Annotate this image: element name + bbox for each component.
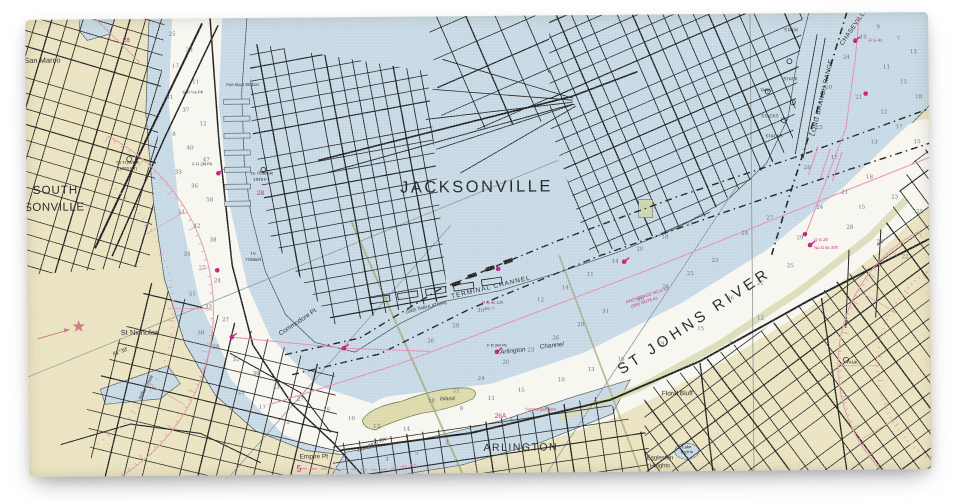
depth-sounding: 15 <box>914 139 922 145</box>
depth-sounding: 3 <box>445 440 449 446</box>
depth-sounding: 29 <box>796 235 804 241</box>
map-label: Q G 2ft <box>814 237 828 242</box>
depth-sounding: 42 <box>193 223 200 229</box>
depth-sounding: 24 <box>843 55 851 61</box>
depth-sounding: 26 <box>804 165 812 171</box>
depth-sounding: 25 <box>169 32 177 38</box>
depth-sounding: 24 <box>214 278 222 284</box>
depth-sounding: 37 <box>182 108 190 114</box>
map-label: STACK <box>783 76 797 81</box>
depth-sounding: 13 <box>373 424 381 430</box>
map-label: STACKS <box>761 113 778 118</box>
pier <box>224 184 250 189</box>
map-label: STACKS <box>765 133 782 138</box>
depth-sounding: 21 <box>686 221 693 227</box>
depth-sounding: 10 <box>558 377 566 383</box>
depth-sounding: 8 <box>172 132 176 138</box>
depth-sounding: 40 <box>187 145 195 151</box>
depth-sounding: 12 <box>757 316 764 322</box>
depth-sounding: 27 <box>297 397 305 403</box>
depth-sounding: 3 <box>385 457 389 463</box>
depth-sounding: 28 <box>846 225 854 231</box>
map-label: 26A <box>495 413 507 420</box>
depth-sounding: 27 <box>222 317 230 323</box>
depth-sounding: 12 <box>199 121 206 127</box>
map-label: F R 2M Pk <box>487 343 508 348</box>
depth-sounding: 33 <box>175 170 183 176</box>
depth-sounding: 13 <box>588 367 596 373</box>
depth-sounding: 24 <box>478 376 486 382</box>
buoy-icon <box>496 267 501 272</box>
road <box>700 363 713 473</box>
map-label: TANK <box>760 87 771 92</box>
buoy-icon <box>215 268 220 273</box>
map-label: G R ¼s Pk <box>183 89 204 94</box>
depth-sounding: 9 <box>876 24 880 30</box>
pier <box>224 99 250 104</box>
map-label: Eggleston <box>647 455 674 461</box>
depth-sounding: 18 <box>866 175 874 181</box>
map-label: F R 2M Pk <box>192 161 213 166</box>
map-label: 1049 FT <box>253 177 270 182</box>
depth-sounding: 23 <box>891 194 899 200</box>
depth-sounding: 18 <box>428 398 436 404</box>
pier <box>224 150 250 155</box>
depth-sounding: 7 <box>475 430 479 436</box>
map-label: San Marco <box>25 56 61 65</box>
depth-sounding: 11 <box>883 64 890 70</box>
depth-sounding: 15 <box>518 388 526 394</box>
depth-sounding: 38 <box>209 237 217 243</box>
map-label: TANK <box>846 360 857 365</box>
depth-sounding: 12 <box>537 297 544 303</box>
depth-sounding: 23 <box>238 390 246 396</box>
depth-sounding: 28 <box>452 323 460 329</box>
depth-sounding: 31 <box>602 309 609 315</box>
depth-sounding: 26 <box>427 338 435 344</box>
depth-sounding: 14 <box>562 285 570 291</box>
depth-sounding: 25 <box>787 263 795 269</box>
depth-sounding: 27 <box>199 265 207 271</box>
map-label: Lucina <box>681 449 694 454</box>
map-label: TV <box>250 251 256 256</box>
map-label: 5 <box>296 464 301 474</box>
depth-sounding: 15 <box>858 205 866 211</box>
depth-sounding: 11 <box>587 272 594 278</box>
depth-sounding: 34 <box>184 252 192 258</box>
depth-sounding: 51 <box>189 291 196 297</box>
map-label: No G 6s 30ft <box>814 245 838 250</box>
nautical-chart: JACKSONVILLE 252317113137128404733365851… <box>25 12 932 477</box>
map-label: STACK <box>784 27 798 32</box>
map-label: 81°38' <box>112 347 129 358</box>
depth-sounding: 25 <box>916 209 924 215</box>
depth-sounding: 58 <box>206 197 214 203</box>
map-label: Fl G 4s 12ft <box>482 300 505 305</box>
map-label: JACKSONVILLE <box>400 177 553 196</box>
pier <box>224 133 250 138</box>
map-label: ARLINGTON <box>483 441 558 454</box>
depth-sounding: 21 <box>855 95 862 101</box>
depth-sounding: 33 <box>273 385 281 391</box>
depth-sounding: 7 <box>896 36 900 42</box>
pier <box>224 116 250 121</box>
depth-sounding: 12 <box>880 109 887 115</box>
depth-sounding: 8 <box>729 341 733 347</box>
map-label: SOUTH <box>33 184 78 196</box>
depth-sounding: 18 <box>661 234 669 240</box>
depth-sounding: 26 <box>876 239 884 245</box>
depth-sounding: 17 <box>259 405 267 411</box>
depth-sounding: 25 <box>687 271 695 277</box>
pier <box>224 167 250 172</box>
depth-sounding: 23 <box>186 47 194 53</box>
depth-sounding: 18 <box>915 94 923 100</box>
depth-sounding: 36 <box>191 183 199 189</box>
depth-sounding: 14 <box>612 259 620 265</box>
map-label: St Nicholas <box>121 328 159 337</box>
depth-sounding: 8 <box>460 406 464 412</box>
map-label: Fl G 4s <box>868 37 882 42</box>
map-label: Heights <box>650 463 670 469</box>
depth-sounding: 51 <box>178 210 185 216</box>
map-label: 28 <box>257 190 265 197</box>
beach-towel: JACKSONVILLE 252317113137128404733365851… <box>25 12 932 477</box>
depth-sounding: 21 <box>453 388 460 394</box>
depth-sounding: 17 <box>831 155 839 161</box>
depth-sounding: 11 <box>192 79 199 85</box>
depth-sounding: 32 <box>232 357 239 363</box>
map-label: TOWER <box>245 257 261 262</box>
depth-sounding: 20 <box>637 247 645 253</box>
depth-sounding: 13 <box>910 49 918 55</box>
depth-sounding: 22 <box>902 254 909 260</box>
depth-sounding: 31 <box>166 95 173 101</box>
depth-sounding: 19 <box>860 35 868 41</box>
depth-sounding: 12 <box>283 420 290 426</box>
map-label: (1000 FT) <box>118 166 138 171</box>
map-label: Empire Pt <box>300 453 329 460</box>
depth-sounding: 17 <box>172 64 180 70</box>
depth-sounding: 33 <box>205 304 213 310</box>
map-label: JACKSONVILLE <box>25 201 85 214</box>
pier <box>225 201 251 206</box>
depth-sounding: 38 <box>197 330 205 336</box>
depth-sounding: 38 <box>253 371 261 377</box>
map-label: Fire Boat Station <box>226 82 259 87</box>
depth-sounding: 24 <box>816 205 824 211</box>
depth-sounding: 19 <box>323 407 331 413</box>
buoy-icon <box>863 91 868 96</box>
depth-sounding: 21 <box>841 190 848 196</box>
map-label: 28 <box>123 37 131 44</box>
product-photo: JACKSONVILLE 252317113137128404733365851… <box>0 0 967 500</box>
depth-sounding: 29 <box>577 322 585 328</box>
depth-sounding: 11 <box>488 396 495 402</box>
depth-sounding: 5 <box>415 451 419 457</box>
depth-sounding: 17 <box>895 124 903 130</box>
depth-sounding: 10 <box>348 416 356 422</box>
depth-sounding: 23 <box>527 348 535 354</box>
depth-sounding: 4 <box>510 418 514 424</box>
depth-sounding: 23 <box>712 258 720 264</box>
star-icon <box>72 320 85 332</box>
depth-sounding: 14 <box>403 427 411 433</box>
depth-sounding: 15 <box>900 79 908 85</box>
depth-sounding: 13 <box>871 140 879 146</box>
map-label: Island <box>440 396 456 402</box>
depth-sounding: 24 <box>741 231 749 237</box>
map-label: 4M '7' <box>484 306 495 311</box>
depth-sounding: 26 <box>552 335 560 341</box>
depth-sounding: 20 <box>503 360 511 366</box>
map-label: TV TOWER <box>250 171 273 176</box>
map-label: Floral Bluff <box>662 390 693 397</box>
depth-sounding: 27 <box>766 215 774 221</box>
map-label: Submerged pipe <box>525 406 556 411</box>
depth-sounding: 24 <box>212 344 220 350</box>
map-label: TV TOWER <box>116 160 139 165</box>
